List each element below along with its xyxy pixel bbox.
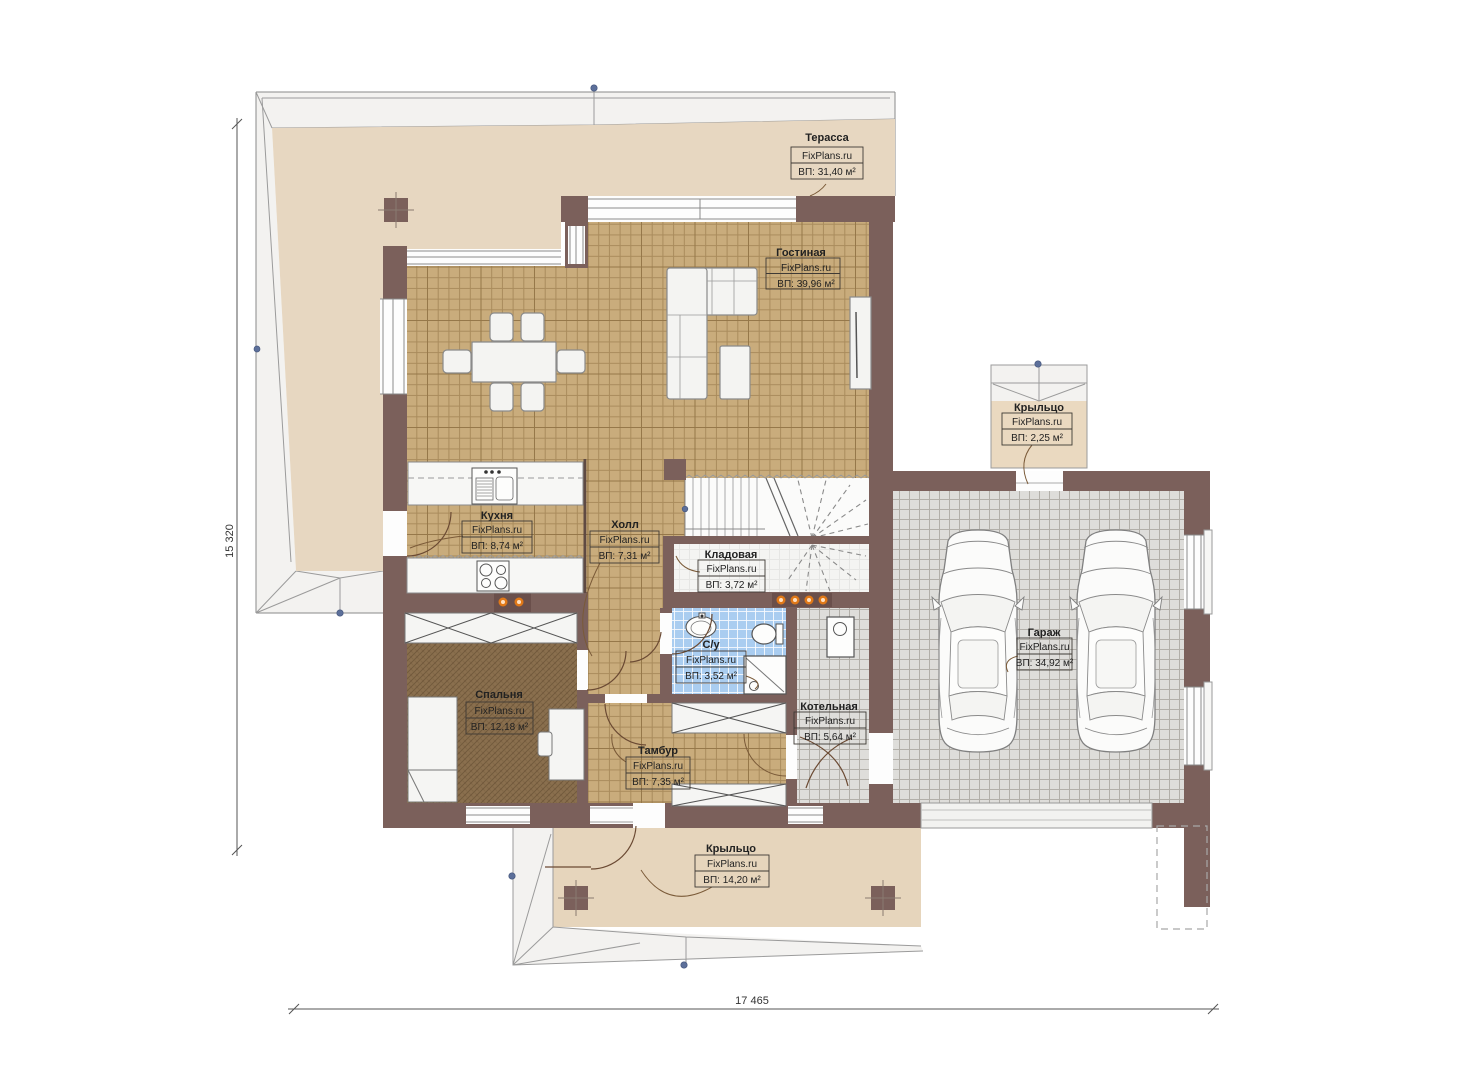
svg-text:ВП: 3,52 м²: ВП: 3,52 м² (685, 671, 738, 682)
svg-text:FixPlans.ru: FixPlans.ru (1012, 417, 1062, 428)
svg-text:Кухня: Кухня (481, 510, 513, 522)
svg-text:FixPlans.ru: FixPlans.ru (802, 151, 852, 162)
svg-text:ВП: 14,20 м²: ВП: 14,20 м² (703, 875, 761, 886)
svg-text:FixPlans.ru: FixPlans.ru (805, 716, 855, 727)
svg-text:Спальня: Спальня (475, 689, 523, 701)
svg-text:Терасса: Терасса (805, 132, 849, 144)
svg-text:FixPlans.ru: FixPlans.ru (472, 525, 522, 536)
svg-text:15 320: 15 320 (224, 524, 236, 558)
svg-text:FixPlans.ru: FixPlans.ru (707, 859, 757, 870)
svg-text:ВП: 7,35 м²: ВП: 7,35 м² (632, 777, 685, 788)
svg-text:Крыльцо: Крыльцо (1014, 402, 1064, 414)
svg-text:ВП: 5,64 м²: ВП: 5,64 м² (804, 732, 857, 743)
svg-text:Тамбур: Тамбур (638, 745, 678, 757)
svg-text:FixPlans.ru: FixPlans.ru (633, 761, 683, 772)
svg-text:ВП: 34,92 м²: ВП: 34,92 м² (1016, 658, 1074, 669)
svg-text:С/у: С/у (702, 639, 720, 651)
svg-text:Гараж: Гараж (1028, 627, 1061, 639)
svg-text:FixPlans.ru: FixPlans.ru (1019, 642, 1069, 653)
svg-text:FixPlans.ru: FixPlans.ru (686, 655, 736, 666)
svg-text:Крыльцо: Крыльцо (706, 843, 756, 855)
svg-text:ВП: 12,18 м²: ВП: 12,18 м² (471, 722, 529, 733)
svg-text:FixPlans.ru: FixPlans.ru (706, 564, 756, 575)
svg-text:FixPlans.ru: FixPlans.ru (781, 263, 831, 274)
svg-text:17 465: 17 465 (735, 995, 769, 1007)
svg-text:ВП: 8,74 м²: ВП: 8,74 м² (471, 541, 524, 552)
svg-text:Котельная: Котельная (800, 701, 858, 713)
svg-text:FixPlans.ru: FixPlans.ru (599, 535, 649, 546)
svg-text:ВП: 39,96 м²: ВП: 39,96 м² (777, 279, 835, 290)
svg-text:Холл: Холл (611, 519, 639, 531)
svg-text:Гостиная: Гостиная (776, 247, 826, 259)
svg-text:ВП: 3,72 м²: ВП: 3,72 м² (706, 580, 759, 591)
svg-text:FixPlans.ru: FixPlans.ru (474, 706, 524, 717)
svg-text:ВП: 7,31 м²: ВП: 7,31 м² (599, 551, 652, 562)
svg-text:ВП: 2,25 м²: ВП: 2,25 м² (1011, 433, 1064, 444)
svg-text:ВП: 31,40 м²: ВП: 31,40 м² (798, 167, 856, 178)
svg-text:Кладовая: Кладовая (705, 549, 758, 561)
